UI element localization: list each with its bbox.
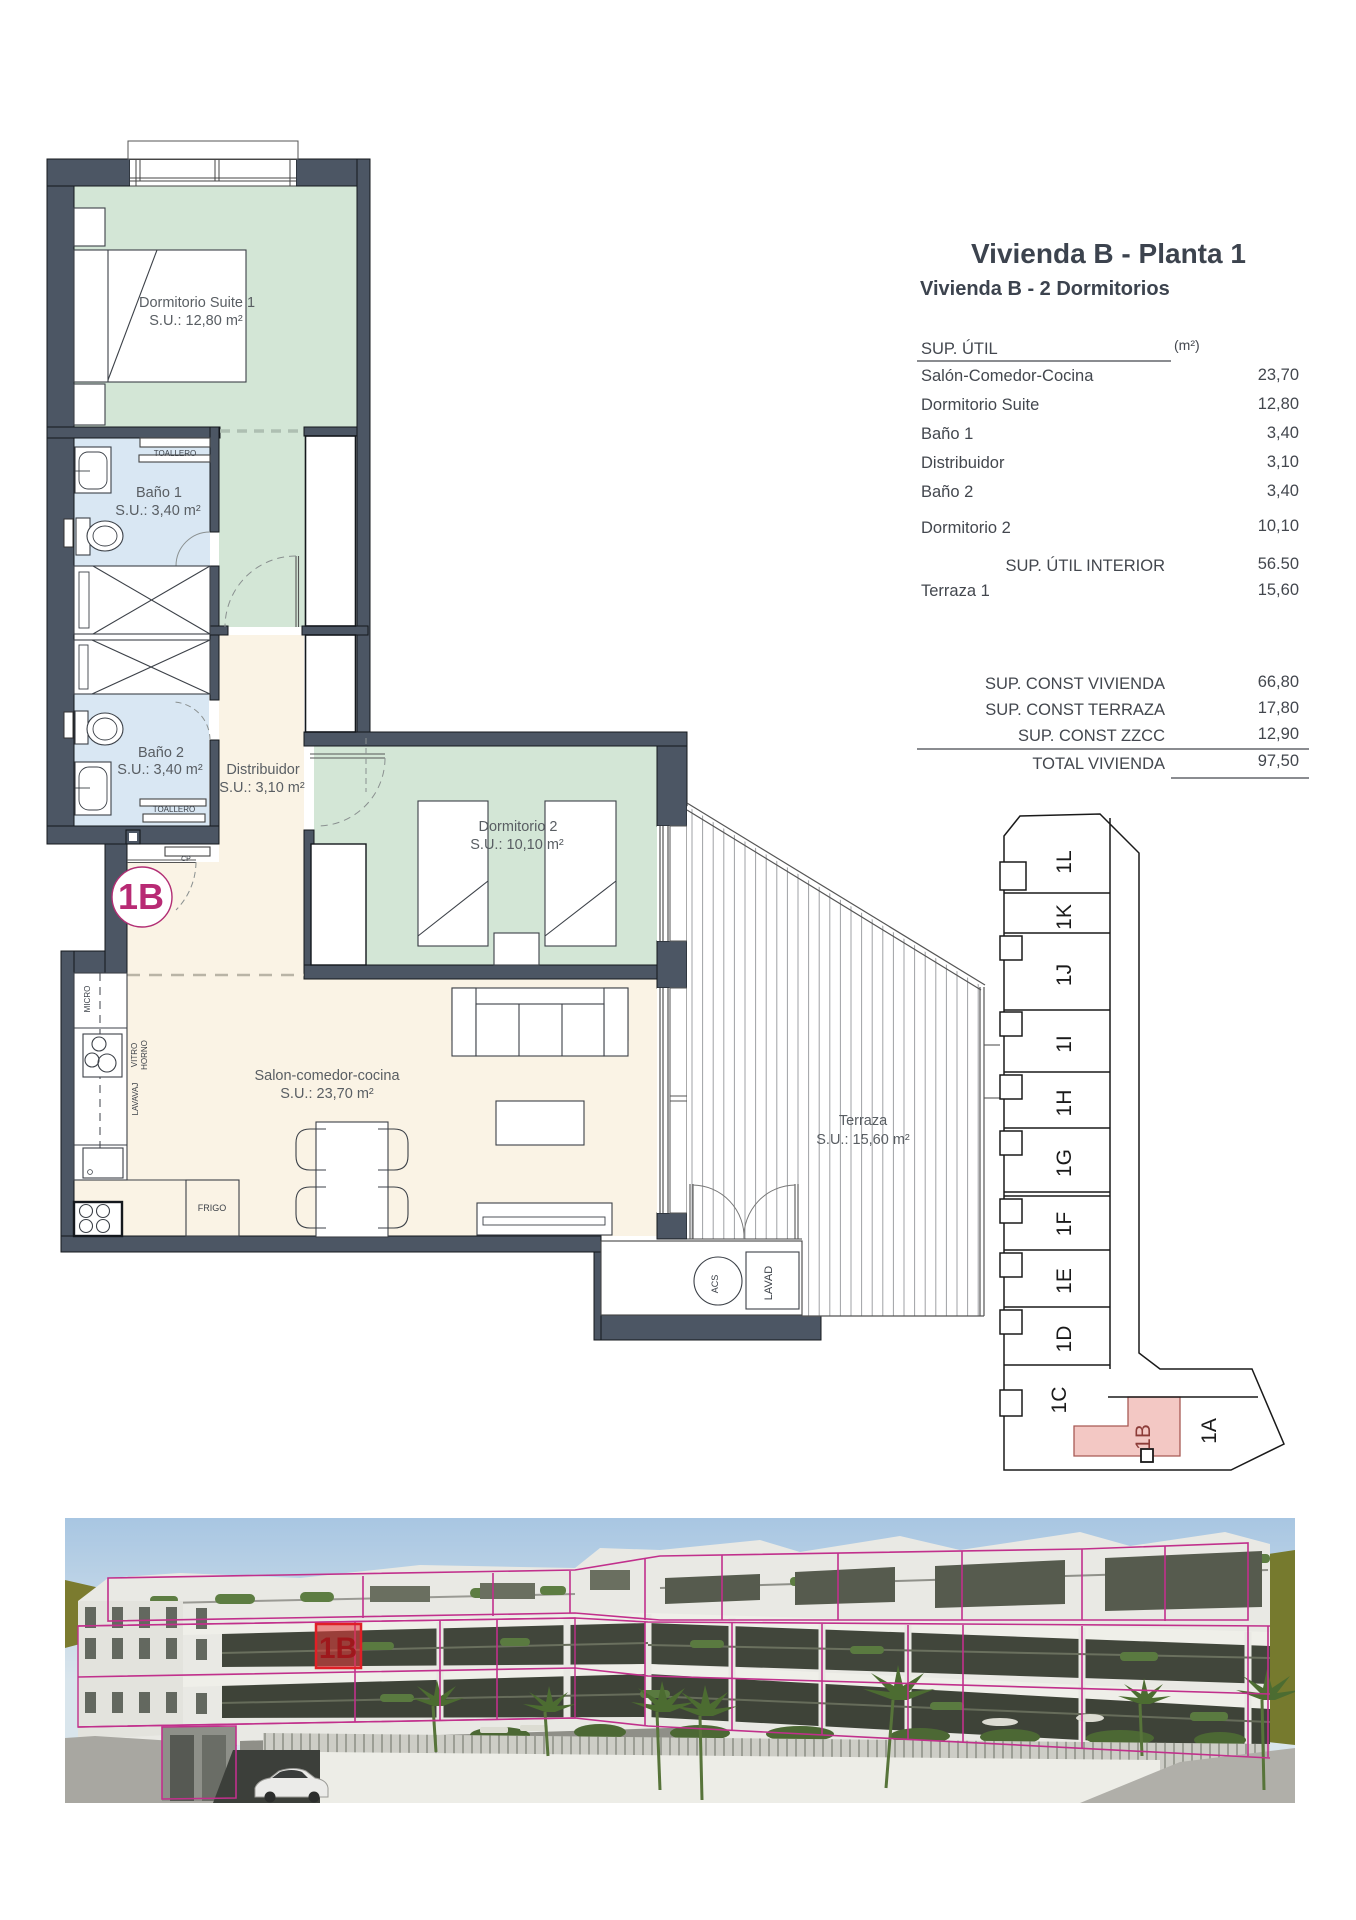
svg-text:MICRO: MICRO — [83, 986, 92, 1013]
svg-text:VITRO: VITRO — [130, 1043, 139, 1067]
svg-text:1H: 1H — [1053, 1090, 1076, 1117]
svg-text:1C: 1C — [1048, 1387, 1071, 1414]
svg-text:TOALLERO: TOALLERO — [153, 805, 196, 814]
svg-text:S.U.: 12,80 m²: S.U.: 12,80 m² — [149, 313, 243, 329]
svg-text:Baño 1: Baño 1 — [136, 485, 182, 501]
svg-text:TOTAL VIVIENDA: TOTAL VIVIENDA — [1032, 755, 1165, 773]
svg-text:1J: 1J — [1053, 964, 1076, 986]
svg-text:1L: 1L — [1053, 850, 1076, 873]
svg-text:1B: 1B — [118, 876, 164, 917]
svg-text:97,50: 97,50 — [1258, 752, 1299, 770]
svg-text:FRIGO: FRIGO — [198, 1203, 227, 1213]
svg-text:SUP. ÚTIL: SUP. ÚTIL — [921, 339, 998, 358]
svg-text:1G: 1G — [1053, 1149, 1076, 1177]
svg-text:LAVAD: LAVAD — [763, 1266, 775, 1300]
svg-text:1B: 1B — [319, 1632, 357, 1665]
svg-text:15,60: 15,60 — [1258, 581, 1299, 599]
svg-text:HORNO: HORNO — [140, 1040, 149, 1070]
svg-text:Terraza 1: Terraza 1 — [921, 582, 990, 600]
svg-text:SUP. CONST TERRAZA: SUP. CONST TERRAZA — [985, 701, 1165, 719]
svg-text:(m²): (m²) — [1174, 337, 1200, 353]
svg-text:Dormitorio Suite 1: Dormitorio Suite 1 — [139, 295, 255, 311]
svg-text:23,70: 23,70 — [1258, 366, 1299, 384]
svg-text:1K: 1K — [1053, 904, 1076, 930]
svg-text:1F: 1F — [1053, 1212, 1076, 1237]
svg-text:Baño 1: Baño 1 — [921, 425, 973, 443]
svg-text:S.U.: 3,10 m²: S.U.: 3,10 m² — [219, 780, 305, 796]
svg-text:S.U.: 15,60 m²: S.U.: 15,60 m² — [816, 1132, 910, 1148]
svg-text:Distribuidor: Distribuidor — [226, 762, 299, 778]
svg-text:Salón-Comedor-Cocina: Salón-Comedor-Cocina — [921, 367, 1094, 385]
svg-text:1I: 1I — [1053, 1035, 1076, 1053]
svg-text:56.50: 56.50 — [1258, 555, 1299, 573]
svg-text:SUP. CONST ZZCC: SUP. CONST ZZCC — [1018, 727, 1165, 745]
svg-text:Dormitorio Suite: Dormitorio Suite — [921, 396, 1039, 414]
svg-text:Distribuidor: Distribuidor — [921, 454, 1005, 472]
svg-text:CP: CP — [181, 856, 191, 863]
svg-text:Baño 2: Baño 2 — [921, 483, 973, 501]
svg-text:10,10: 10,10 — [1258, 517, 1299, 535]
svg-text:Baño 2: Baño 2 — [138, 745, 184, 761]
svg-text:Dormitorio 2: Dormitorio 2 — [921, 519, 1011, 537]
svg-text:SUP. CONST VIVIENDA: SUP. CONST VIVIENDA — [985, 675, 1165, 693]
svg-text:3,40: 3,40 — [1267, 424, 1299, 442]
svg-text:SUP. ÚTIL INTERIOR: SUP. ÚTIL INTERIOR — [1005, 556, 1165, 575]
svg-text:1D: 1D — [1053, 1326, 1076, 1353]
svg-text:S.U.: 10,10 m²: S.U.: 10,10 m² — [470, 837, 564, 853]
svg-text:TOALLERO: TOALLERO — [154, 449, 197, 458]
svg-text:17,80: 17,80 — [1258, 699, 1299, 717]
svg-text:S.U.: 3,40 m²: S.U.: 3,40 m² — [117, 762, 203, 778]
svg-text:Vivienda B - 2 Dormitorios: Vivienda B - 2 Dormitorios — [920, 278, 1170, 300]
svg-text:Vivienda B - Planta 1: Vivienda B - Planta 1 — [971, 238, 1246, 269]
svg-text:S.U.: 3,40 m²: S.U.: 3,40 m² — [115, 503, 201, 519]
svg-text:1E: 1E — [1053, 1268, 1076, 1294]
svg-text:66,80: 66,80 — [1258, 673, 1299, 691]
svg-text:1B: 1B — [1132, 1424, 1155, 1450]
svg-text:Dormitorio 2: Dormitorio 2 — [479, 819, 558, 835]
svg-text:ACS: ACS — [710, 1275, 720, 1294]
svg-text:12,90: 12,90 — [1258, 725, 1299, 743]
svg-text:Terraza: Terraza — [839, 1113, 888, 1129]
svg-text:3,40: 3,40 — [1267, 482, 1299, 500]
svg-text:1A: 1A — [1198, 1418, 1221, 1444]
svg-text:Salon-comedor-cocina: Salon-comedor-cocina — [254, 1068, 400, 1084]
svg-text:12,80: 12,80 — [1258, 395, 1299, 413]
svg-text:S.U.: 23,70 m²: S.U.: 23,70 m² — [280, 1086, 374, 1102]
svg-text:LAVAVAJ: LAVAVAJ — [131, 1083, 140, 1116]
svg-text:3,10: 3,10 — [1267, 453, 1299, 471]
